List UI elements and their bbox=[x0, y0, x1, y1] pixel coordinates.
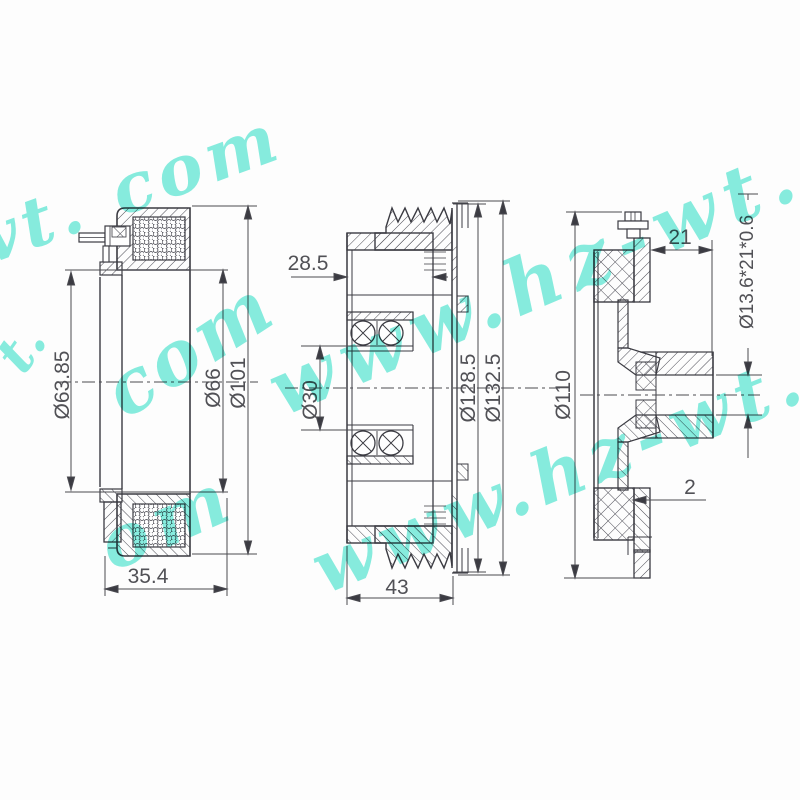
technical-drawing: Ø63.85 Ø66 Ø101 35.4 28.5 Ø30 Ø128.5 Ø13… bbox=[0, 0, 800, 800]
hub-rivet bbox=[618, 212, 648, 238]
dim-pulley-outerod-label: Ø132.5 bbox=[482, 354, 505, 423]
drawing-canvas: Ø63.85 Ø66 Ø101 35.4 28.5 Ø30 Ø128.5 Ø13… bbox=[0, 0, 800, 800]
dim-hub-outer-label: Ø110 bbox=[552, 370, 575, 420]
dim-coil-seat-label: Ø66 bbox=[202, 368, 225, 408]
dim-hub-bosslength-label: 21 bbox=[668, 226, 691, 249]
dim-pulley-grooveod-label: Ø128.5 bbox=[457, 354, 480, 423]
dim-pulley-hubwidth-label: 28.5 bbox=[288, 252, 329, 275]
dim-coil-bore-label: Ø63.85 bbox=[51, 351, 74, 420]
dim-hub-spline-label: Ø13.6*21*0.6 bbox=[737, 215, 758, 329]
dim-coil-width-label: 35.4 bbox=[128, 565, 169, 588]
dim-coil-outer-label: Ø101 bbox=[227, 357, 250, 408]
dim-hub-step-label: 2 bbox=[684, 476, 696, 499]
coil-bracket bbox=[104, 502, 121, 548]
dim-pulley-width-label: 43 bbox=[385, 576, 408, 599]
dim-pulley-bore-label: Ø30 bbox=[299, 380, 322, 420]
